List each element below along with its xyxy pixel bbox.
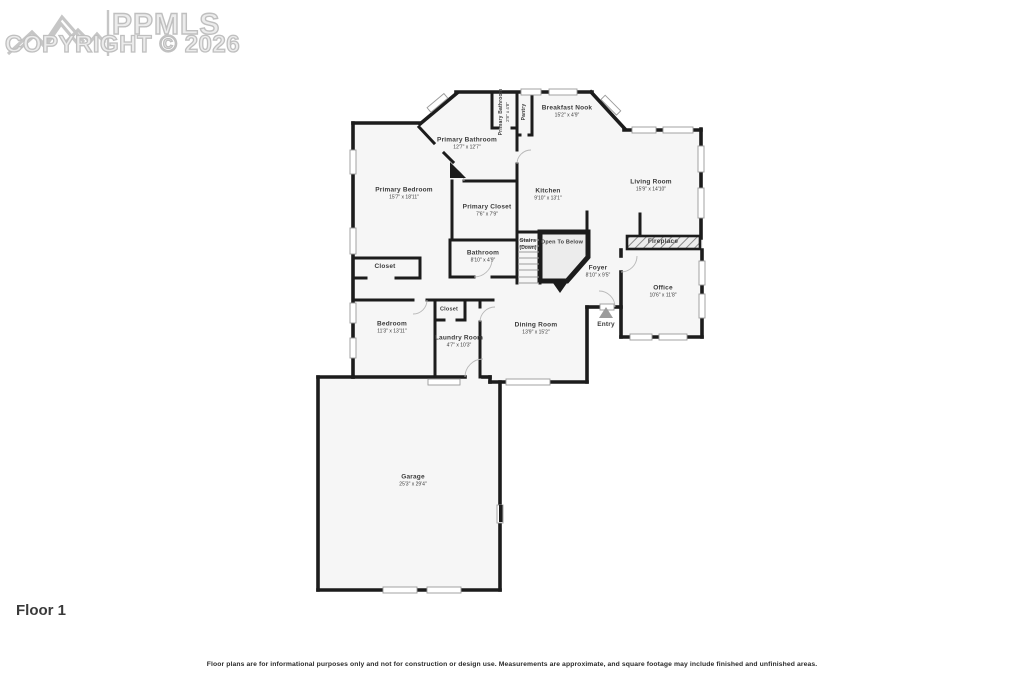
room-label-bathroom: Bathroom 8'10" x 4'9" (467, 250, 499, 265)
room-name: Fireplace (648, 238, 678, 246)
room-dims: 8'10" x 9'5" (586, 273, 611, 280)
room-dims: 15'9" x 14'10" (630, 187, 672, 194)
room-dims: 2'8" x 4'8" (504, 89, 510, 136)
room-label-primary-bathroom: Primary Bathroom 12'7" x 12'7" (437, 137, 497, 152)
room-label-open-to-below: Open To Below (541, 239, 583, 246)
room-dims: 15'2" x 4'9" (542, 113, 592, 120)
room-name: Closet (374, 263, 395, 271)
garage-door-leaf (499, 505, 503, 522)
room-name: Pantry (521, 104, 528, 121)
room-dims: 7'6" x 7'9" (463, 212, 512, 219)
room-dims: 9'10" x 13'1" (534, 196, 561, 203)
room-name: Laundry Room (435, 335, 483, 343)
room-name: Living Room (630, 179, 672, 187)
room-name: Breakfast Nook (542, 105, 592, 113)
room-label-fireplace: Fireplace (648, 238, 678, 246)
room-dims: 11'3" x 13'11" (377, 329, 407, 336)
room-label-primary-bathroom-wc: Primary Bathroom 2'8" x 4'8" (498, 89, 510, 136)
room-name: Bedroom (377, 321, 407, 329)
floor-plan-drawing (0, 0, 1024, 682)
room-label-dining-room: Dining Room 13'9" x 15'2" (515, 322, 558, 337)
room-name: Office (649, 285, 676, 293)
room-name: Closet (440, 306, 458, 313)
room-name: Primary Bathroom (437, 137, 497, 145)
room-name: Dining Room (515, 322, 558, 330)
room-label-stairs: Stairs (Down) (520, 238, 537, 252)
room-dims: (Down) (520, 245, 537, 252)
room-name: Foyer (586, 265, 611, 273)
room-label-laundry-room: Laundry Room 4'7" x 10'3" (435, 335, 483, 350)
room-name: Bathroom (467, 250, 499, 258)
floor-label: Floor 1 (16, 602, 66, 619)
room-label-closet-hall: Closet (374, 263, 395, 271)
room-label-entry: Entry (597, 321, 615, 329)
room-name: Garage (399, 474, 426, 482)
room-dims: 15'7" x 18'11" (375, 195, 433, 202)
disclaimer-text: Floor plans are for informational purpos… (0, 661, 1024, 668)
room-dims: 4'7" x 10'3" (435, 343, 483, 350)
room-label-kitchen: Kitchen 9'10" x 13'1" (534, 188, 561, 203)
room-label-primary-bedroom: Primary Bedroom 15'7" x 18'11" (375, 187, 433, 202)
room-dims: 25'3" x 29'4" (399, 482, 426, 489)
room-name: Open To Below (541, 239, 583, 246)
room-label-primary-closet: Primary Closet 7'6" x 7'9" (463, 204, 512, 219)
room-label-closet-bedroom: Closet (440, 306, 458, 313)
room-label-pantry: Pantry (521, 104, 528, 121)
room-label-living-room: Living Room 15'9" x 14'10" (630, 179, 672, 194)
room-name: Primary Closet (463, 204, 512, 212)
room-label-breakfast-nook: Breakfast Nook 15'2" x 4'9" (542, 105, 592, 120)
room-name: Primary Bathroom (498, 89, 505, 136)
room-name: Entry (597, 321, 615, 329)
room-dims: 13'9" x 15'2" (515, 330, 558, 337)
room-name: Primary Bedroom (375, 187, 433, 195)
room-label-bedroom: Bedroom 11'3" x 13'11" (377, 321, 407, 336)
room-name: Kitchen (534, 188, 561, 196)
room-dims: 10'6" x 11'8" (649, 293, 676, 300)
room-dims: 8'10" x 4'9" (467, 258, 499, 265)
room-label-garage: Garage 25'3" x 29'4" (399, 474, 426, 489)
room-dims: 12'7" x 12'7" (437, 145, 497, 152)
room-label-foyer: Foyer 8'10" x 9'5" (586, 265, 611, 280)
room-label-office: Office 10'6" x 11'8" (649, 285, 676, 300)
floor-area (318, 92, 703, 590)
room-name: Stairs (520, 238, 537, 245)
